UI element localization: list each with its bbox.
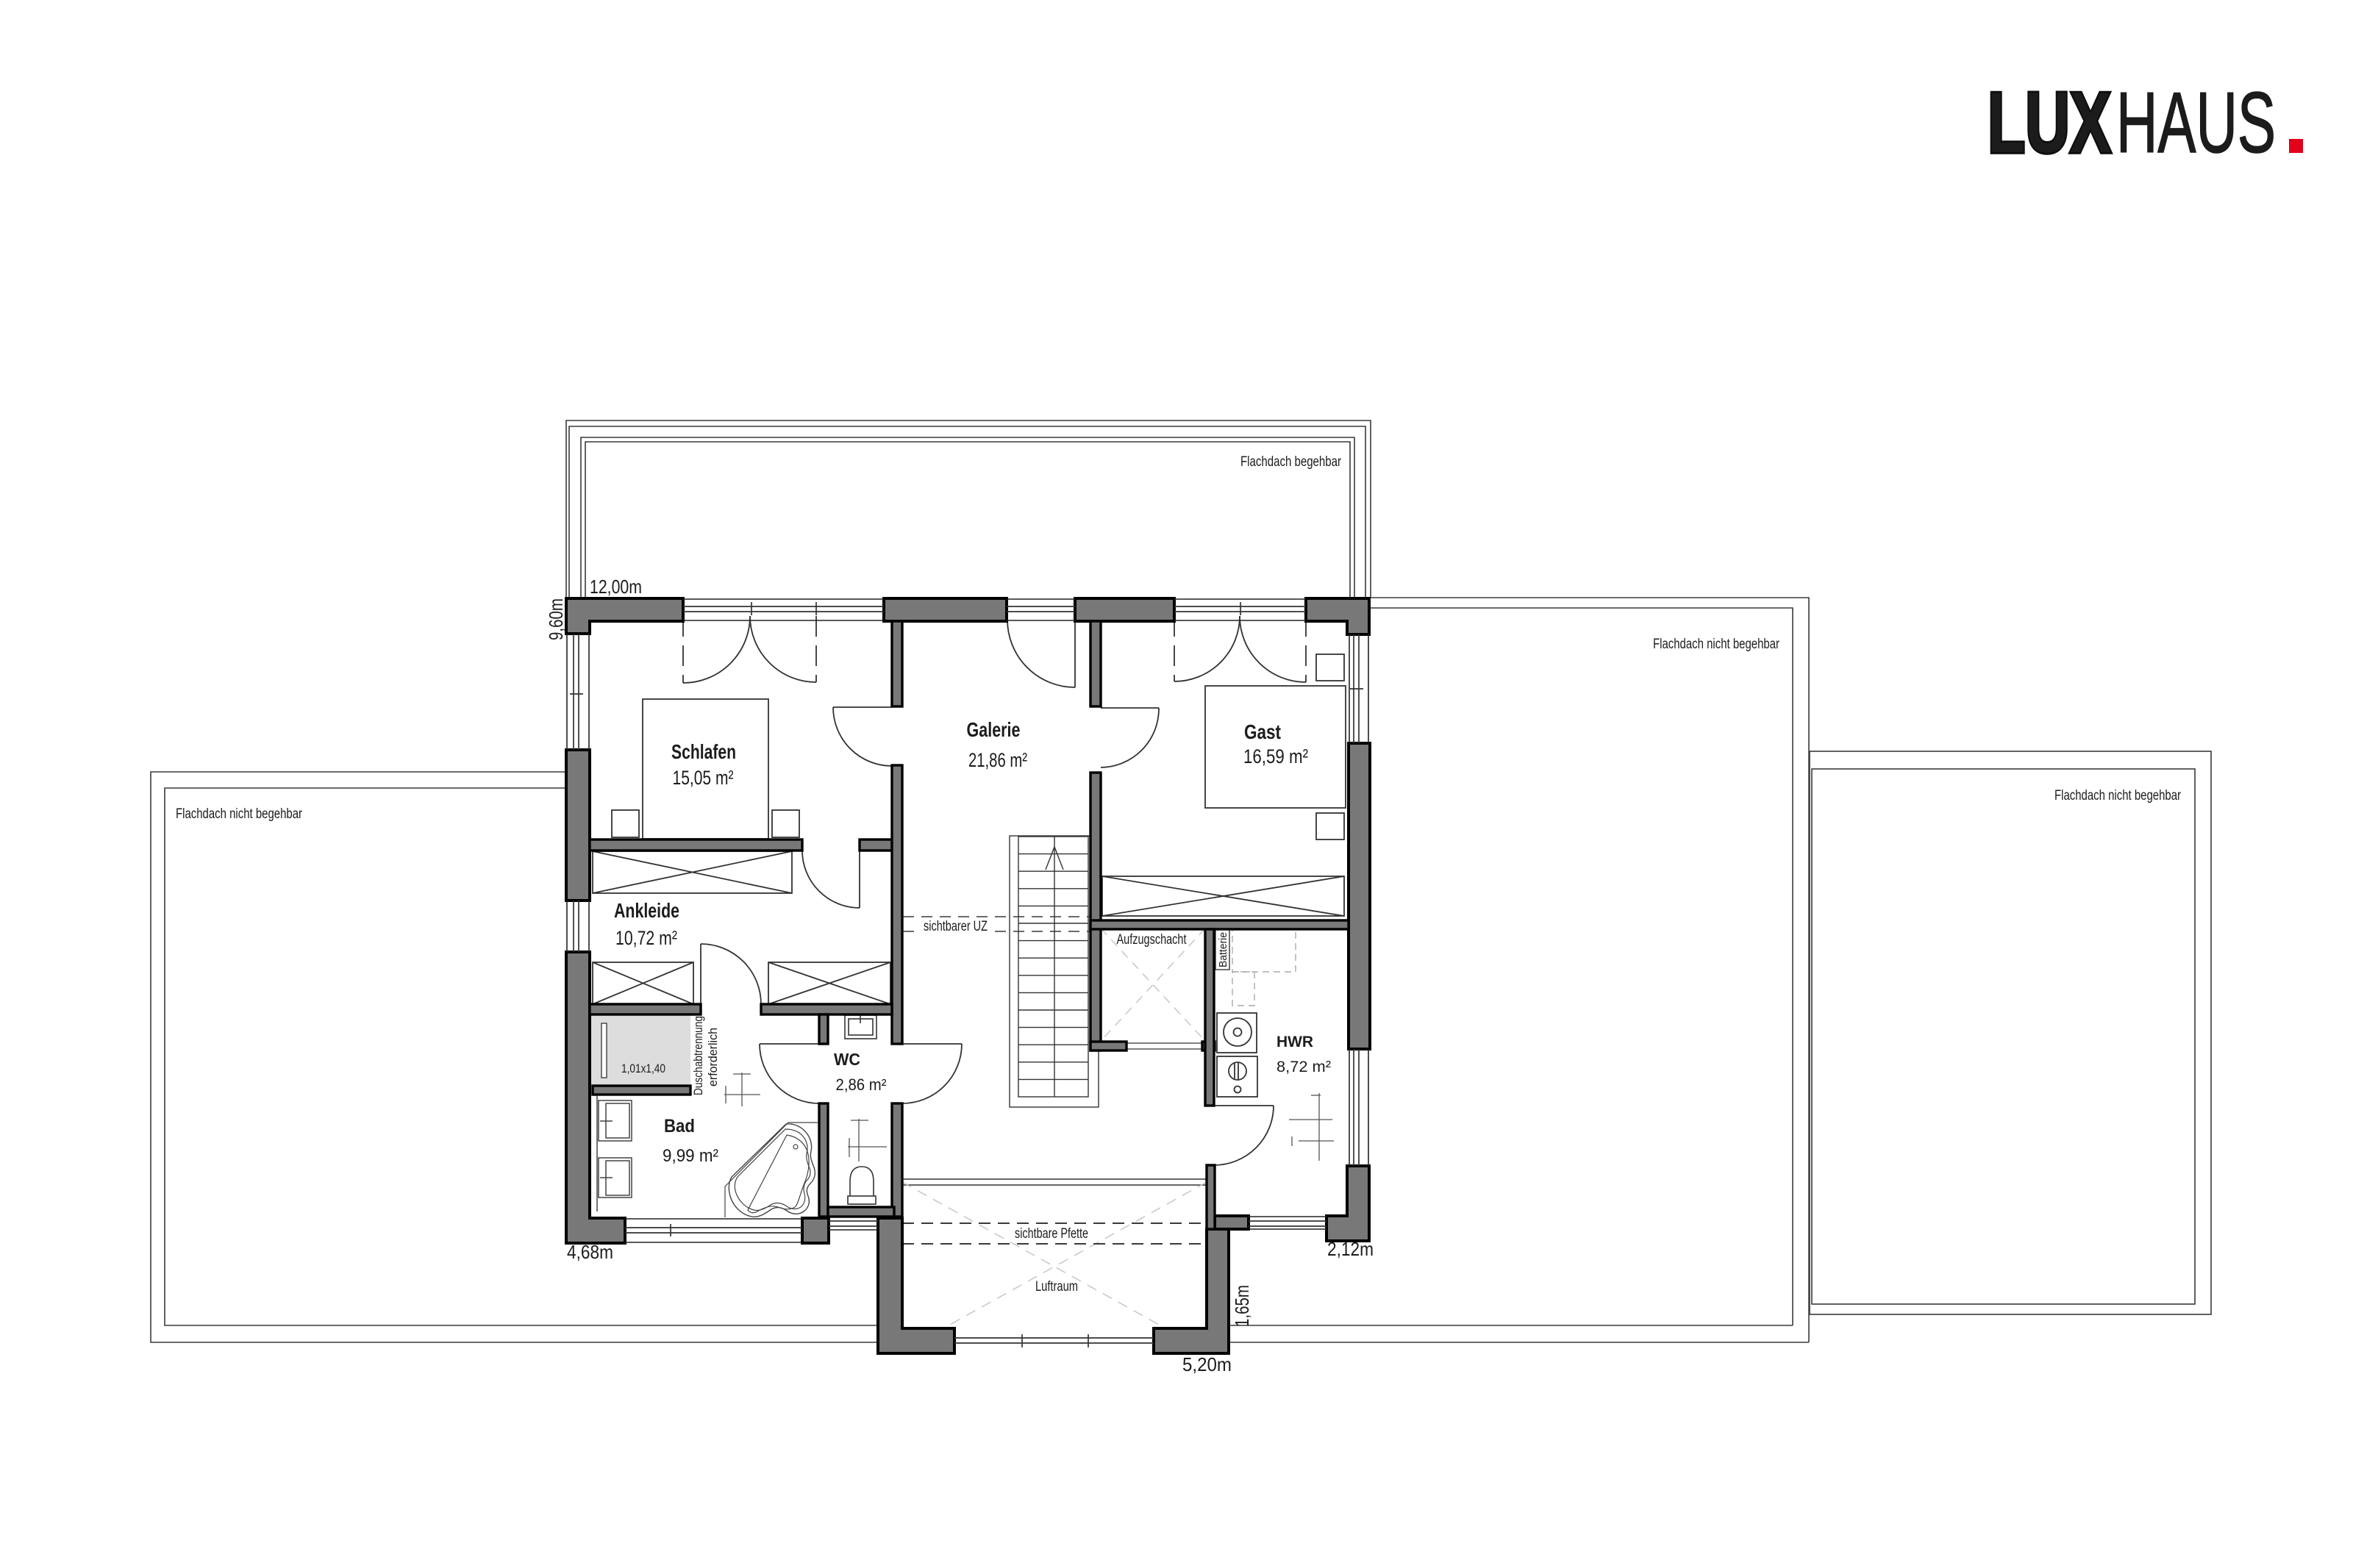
svg-text:Luftraum: Luftraum	[1035, 1279, 1078, 1295]
svg-text:Gast: Gast	[1244, 720, 1281, 743]
svg-text:WC: WC	[834, 1050, 860, 1069]
svg-text:Schlafen: Schlafen	[671, 740, 736, 763]
svg-text:HWR: HWR	[1277, 1034, 1313, 1050]
svg-text:LUX: LUX	[1988, 74, 2111, 171]
svg-text:15,05 m²: 15,05 m²	[673, 767, 734, 789]
svg-text:Flachdach nicht begehbar: Flachdach nicht begehbar	[2054, 788, 2182, 803]
svg-text:12,00m: 12,00m	[590, 576, 642, 598]
svg-text:16,59 m²: 16,59 m²	[1243, 745, 1308, 767]
svg-text:21,86 m²: 21,86 m²	[968, 749, 1027, 771]
svg-text:HAUS: HAUS	[2116, 74, 2276, 171]
svg-text:1,01x1,40: 1,01x1,40	[621, 1062, 665, 1075]
svg-text:Flachdach nicht begehbar: Flachdach nicht begehbar	[1653, 637, 1780, 652]
svg-text:1,65m: 1,65m	[1231, 1285, 1253, 1327]
svg-text:8,72 m²: 8,72 m²	[1277, 1059, 1331, 1075]
svg-text:Flachdach nicht begehbar: Flachdach nicht begehbar	[176, 806, 303, 822]
svg-text:4,68m: 4,68m	[567, 1241, 613, 1263]
svg-text:2,86 m²: 2,86 m²	[836, 1075, 887, 1094]
svg-text:Duschabtrennung: Duschabtrennung	[691, 1016, 705, 1095]
svg-text:Flachdach begehbar: Flachdach begehbar	[1240, 454, 1342, 470]
svg-text:Galerie: Galerie	[967, 718, 1021, 741]
svg-text:10,72 m²: 10,72 m²	[615, 927, 677, 949]
svg-text:sichtbare Pfette: sichtbare Pfette	[1015, 1226, 1088, 1242]
svg-text:Aufzugschacht: Aufzugschacht	[1117, 932, 1188, 948]
svg-text:9,99 m²: 9,99 m²	[663, 1146, 718, 1166]
svg-text:9,60m: 9,60m	[545, 598, 567, 640]
svg-text:2,12m: 2,12m	[1327, 1238, 1374, 1260]
svg-text:Ankleide: Ankleide	[614, 899, 679, 922]
svg-text:erforderlich: erforderlich	[706, 1028, 720, 1086]
svg-text:5,20m: 5,20m	[1182, 1353, 1232, 1375]
svg-text:Batterie: Batterie	[1217, 932, 1229, 967]
svg-text:sichtbarer UZ: sichtbarer UZ	[924, 919, 988, 934]
svg-text:Bad: Bad	[664, 1116, 695, 1136]
